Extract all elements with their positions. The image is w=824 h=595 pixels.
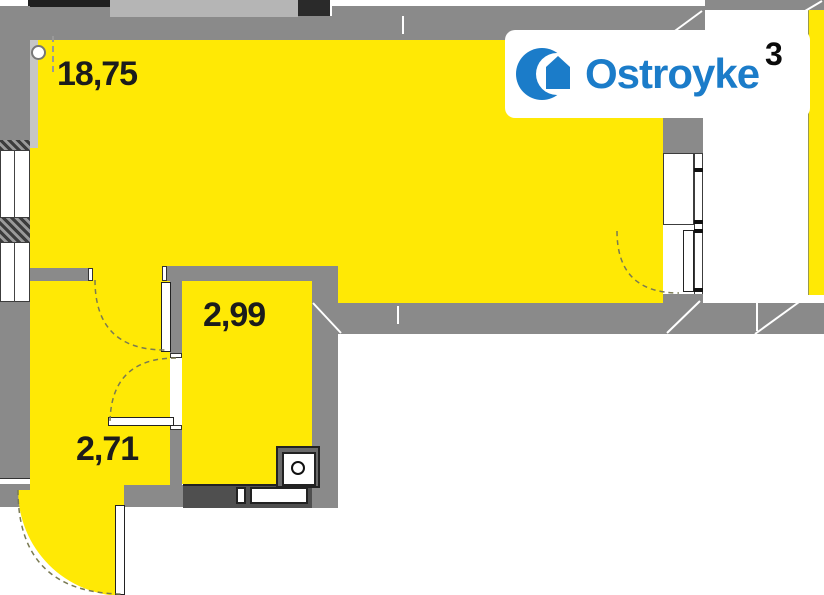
ostroyke-logo-text: Ostroyke — [585, 53, 759, 95]
door-arc-inner-room — [110, 358, 176, 424]
room-label-inner: 2,99 — [203, 298, 265, 332]
room-label-hallway: 2,71 — [76, 432, 138, 466]
wall-hatch-line — [313, 303, 341, 333]
door-arc-living-hall — [95, 280, 165, 350]
wall-hatch-line — [800, 1, 822, 14]
door-arc-entrance — [18, 490, 124, 594]
ostroyke-logo-superscript: 3 — [765, 38, 783, 70]
floor-plan: 18,75 2,99 2,71 Ostroyke 3 — [0, 0, 824, 595]
wall-hatch-line — [755, 297, 806, 334]
ostroyke-logo-icon — [515, 42, 573, 106]
room-label-living: 18,75 — [57, 57, 137, 91]
wall-hatch-line — [667, 301, 700, 333]
door-arc-balcony — [617, 231, 679, 293]
